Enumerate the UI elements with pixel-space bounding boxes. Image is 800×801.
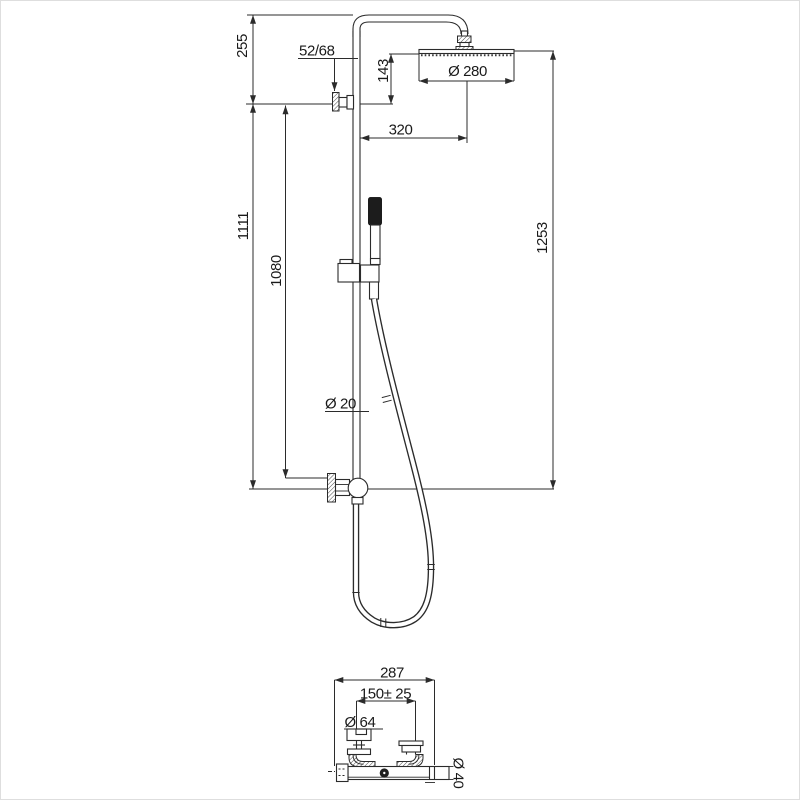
overhead-shower-head [419, 50, 514, 54]
wall-bracket [333, 93, 354, 112]
left-inlet-elbow [349, 755, 375, 768]
right-inlet-elbow [397, 755, 423, 768]
shower-column-front-view [328, 15, 515, 627]
center-screw-dot [383, 772, 385, 774]
dim-label-143: 143 [375, 59, 392, 83]
hand-shower-hose-connector [370, 282, 379, 299]
dim-label-20: Ø 20 [325, 396, 356, 413]
hand-shower [369, 198, 382, 265]
dim-label-150: 150± 25 [360, 686, 411, 703]
dim-label-287: 287 [380, 665, 404, 682]
tube-left-cap [337, 764, 349, 782]
dim-label-280: Ø 280 [448, 63, 487, 80]
dim-label-1111: 1111 [235, 212, 252, 240]
hand-shower-head [369, 198, 382, 226]
head-ball-joint [456, 31, 473, 51]
hand-shower-handle [371, 225, 381, 261]
shower-hose [352, 299, 435, 627]
dim-label-255: 255 [234, 34, 251, 58]
dim-label-1080: 1080 [268, 255, 285, 287]
shower-arm-outer [353, 15, 468, 37]
dim-label-320: 320 [389, 122, 413, 139]
valve-body-tube [328, 764, 454, 783]
dim-label-40: Ø 40 [450, 758, 467, 789]
dim-label-52-68: 52/68 [299, 43, 335, 60]
drawing-svg: 255 52/68 143 Ø 280 320 1111 1080 1253 Ø… [1, 1, 800, 801]
front-view-labels: 255 52/68 143 Ø 280 320 1111 1080 1253 Ø… [234, 34, 551, 412]
right-control-handle [399, 741, 423, 755]
wall-supply-elbow [328, 474, 368, 505]
left-control-knob [347, 729, 371, 755]
technical-drawing: 255 52/68 143 Ø 280 320 1111 1080 1253 Ø… [0, 0, 800, 800]
shower-arm-inner [360, 22, 461, 37]
dim-label-64: Ø 64 [345, 714, 376, 731]
dim-label-1253: 1253 [534, 222, 551, 254]
hand-shower-joint [371, 259, 381, 265]
hose-ball-joint [348, 478, 368, 498]
